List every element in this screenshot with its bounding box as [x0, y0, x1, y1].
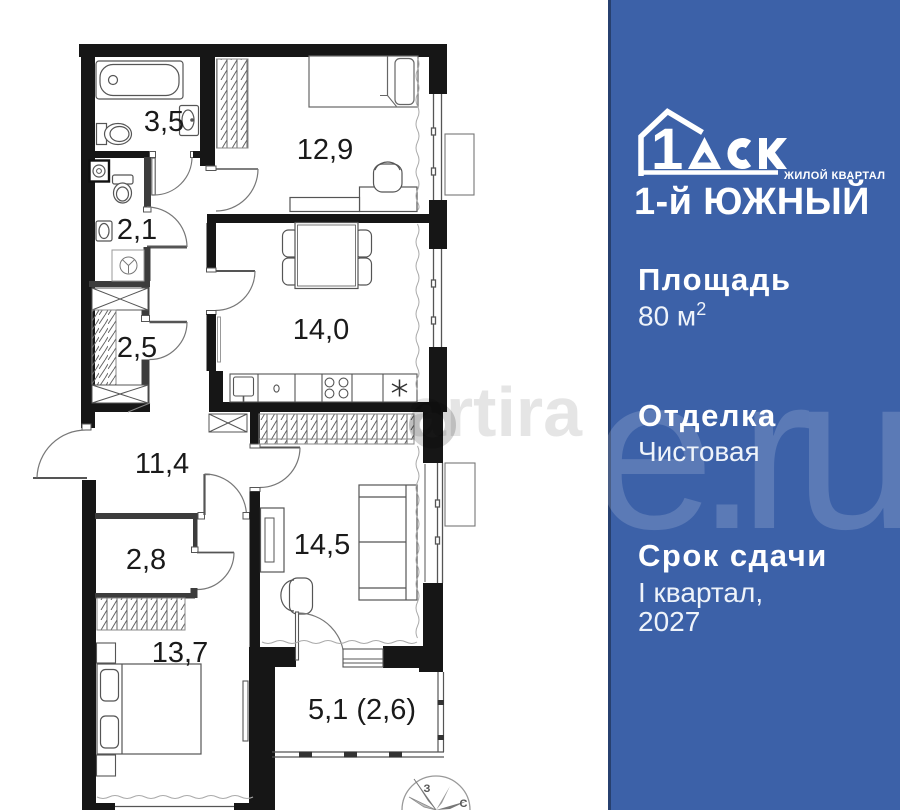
svg-text:2,8: 2,8 — [126, 544, 166, 576]
svg-text:3,5: 3,5 — [144, 106, 184, 138]
svg-text:12,9: 12,9 — [297, 134, 353, 166]
svg-text:5,1 (2,6): 5,1 (2,6) — [308, 694, 416, 726]
svg-text:1-й ЮЖНЫЙ: 1-й ЮЖНЫЙ — [634, 178, 870, 223]
svg-text:С: С — [460, 798, 468, 810]
svg-text:2,1: 2,1 — [117, 214, 157, 246]
svg-text:З: З — [424, 783, 431, 795]
svg-text:2,5: 2,5 — [117, 332, 157, 364]
svg-text:13,7: 13,7 — [152, 637, 208, 669]
svg-text:1: 1 — [651, 117, 683, 182]
svg-text:14,5: 14,5 — [294, 529, 350, 561]
svg-text:11,4: 11,4 — [135, 448, 189, 480]
svg-text:14,0: 14,0 — [293, 314, 349, 346]
